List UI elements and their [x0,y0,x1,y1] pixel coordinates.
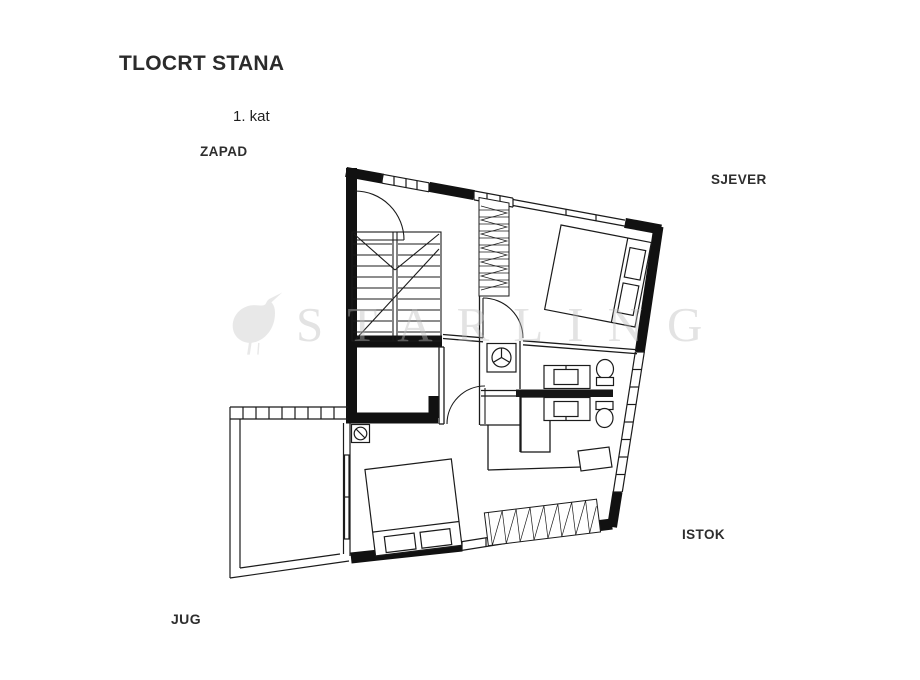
sink-icon [544,398,590,421]
terrace [230,407,350,578]
screenshot-root: TLOCRT STANA 1. kat ZAPAD SJEVER ISTOK J… [0,0,920,680]
toilet-icon [596,402,613,428]
washing-machine-icon [487,344,516,373]
bed-north [545,225,652,327]
wardrobe-south [484,499,600,546]
hall-wardrobe [479,198,509,297]
utility-valve-icon [352,425,370,443]
shower-tray [578,447,612,471]
toilet-icon [597,360,614,386]
floor-plan-drawing [0,0,920,680]
staircase [352,232,441,341]
sink-icon [544,366,590,389]
bed-south [365,459,462,556]
